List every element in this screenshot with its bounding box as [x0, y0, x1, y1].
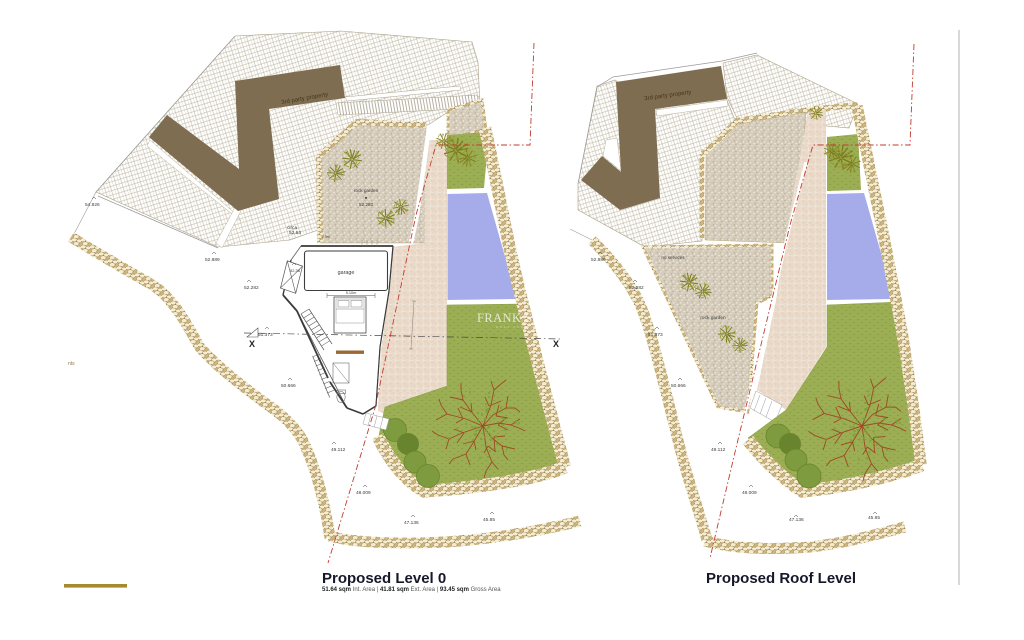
svg-text:51.64 sqm Int. Area | 41.81 sq: 51.64 sqm Int. Area | 41.81 sqm Ext. Are… — [322, 587, 501, 593]
svg-text:Proposed Roof Level: Proposed Roof Level — [706, 570, 856, 587]
svg-text:50.666: 50.666 — [281, 383, 296, 389]
svg-text:5.10m: 5.10m — [346, 291, 357, 295]
svg-text:48.009: 48.009 — [356, 490, 371, 496]
svg-text:54.826: 54.826 — [85, 202, 100, 208]
svg-text:52.889: 52.889 — [591, 257, 606, 263]
svg-text:52.282: 52.282 — [244, 285, 259, 291]
svg-text:52.63: 52.63 — [289, 230, 301, 236]
svg-text:52.889: 52.889 — [205, 257, 220, 263]
svg-text:■: ■ — [365, 196, 367, 200]
svg-text:48.009: 48.009 — [742, 490, 757, 496]
svg-text:X: X — [553, 339, 559, 349]
svg-text:50.666: 50.666 — [671, 383, 686, 389]
svg-text:REAL ESTATE: REAL ESTATE — [496, 325, 535, 329]
svg-text:45.85: 45.85 — [868, 515, 880, 521]
svg-text:47.136: 47.136 — [404, 520, 419, 526]
svg-text:52.283: 52.283 — [359, 202, 373, 207]
svg-text:nts: nts — [68, 361, 75, 367]
svg-text:52.282: 52.282 — [629, 285, 644, 291]
svg-text:Proposed Level 0: Proposed Level 0 — [322, 570, 446, 587]
svg-text:garage: garage — [338, 270, 355, 276]
svg-text:rock garden: rock garden — [700, 315, 726, 321]
svg-text:7.9m: 7.9m — [322, 235, 330, 239]
svg-text:47.136: 47.136 — [789, 517, 804, 523]
svg-text:52.38: 52.38 — [290, 268, 301, 273]
svg-text:51.373: 51.373 — [648, 332, 663, 338]
svg-text:49.112: 49.112 — [331, 447, 346, 453]
svg-text:rock garden: rock garden — [354, 188, 379, 193]
svg-text:FRANK S: FRANK S — [477, 311, 532, 325]
svg-text:51.373: 51.373 — [258, 332, 273, 338]
svg-text:45.85: 45.85 — [483, 517, 495, 523]
svg-text:X: X — [249, 339, 255, 349]
svg-text:49.112: 49.112 — [711, 447, 726, 453]
svg-text:no services: no services — [661, 255, 685, 260]
